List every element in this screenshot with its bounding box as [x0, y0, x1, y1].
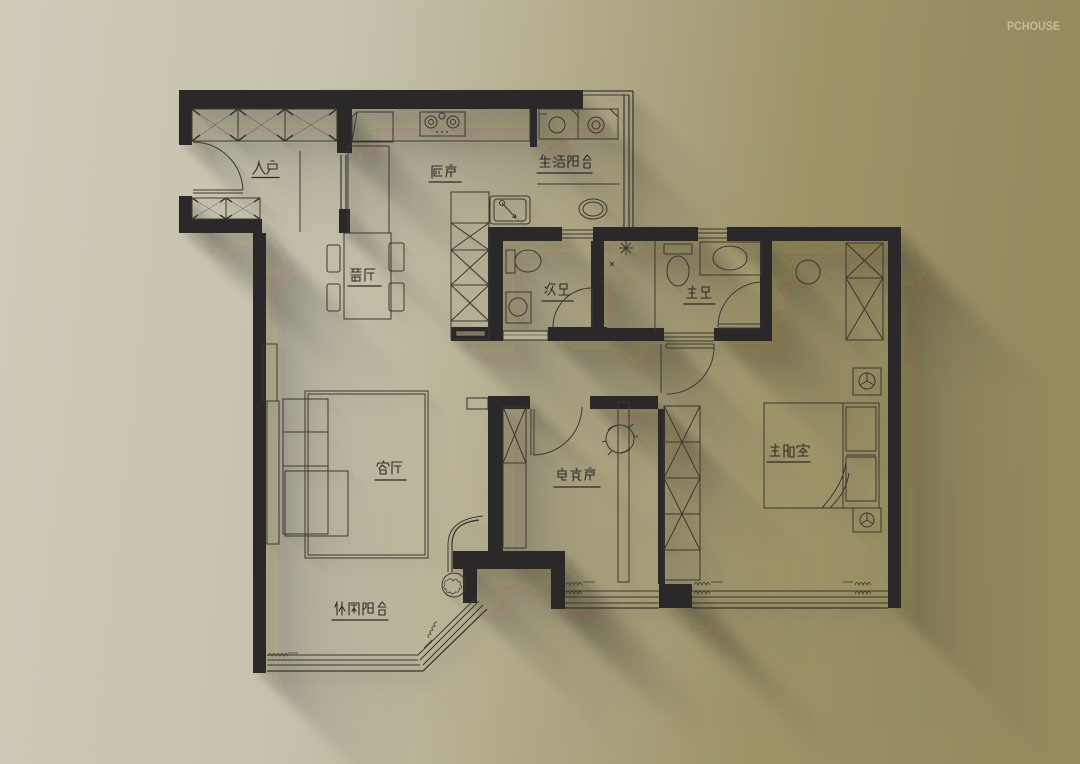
svg-text:PCHOUSE: PCHOUSE	[1007, 19, 1060, 33]
